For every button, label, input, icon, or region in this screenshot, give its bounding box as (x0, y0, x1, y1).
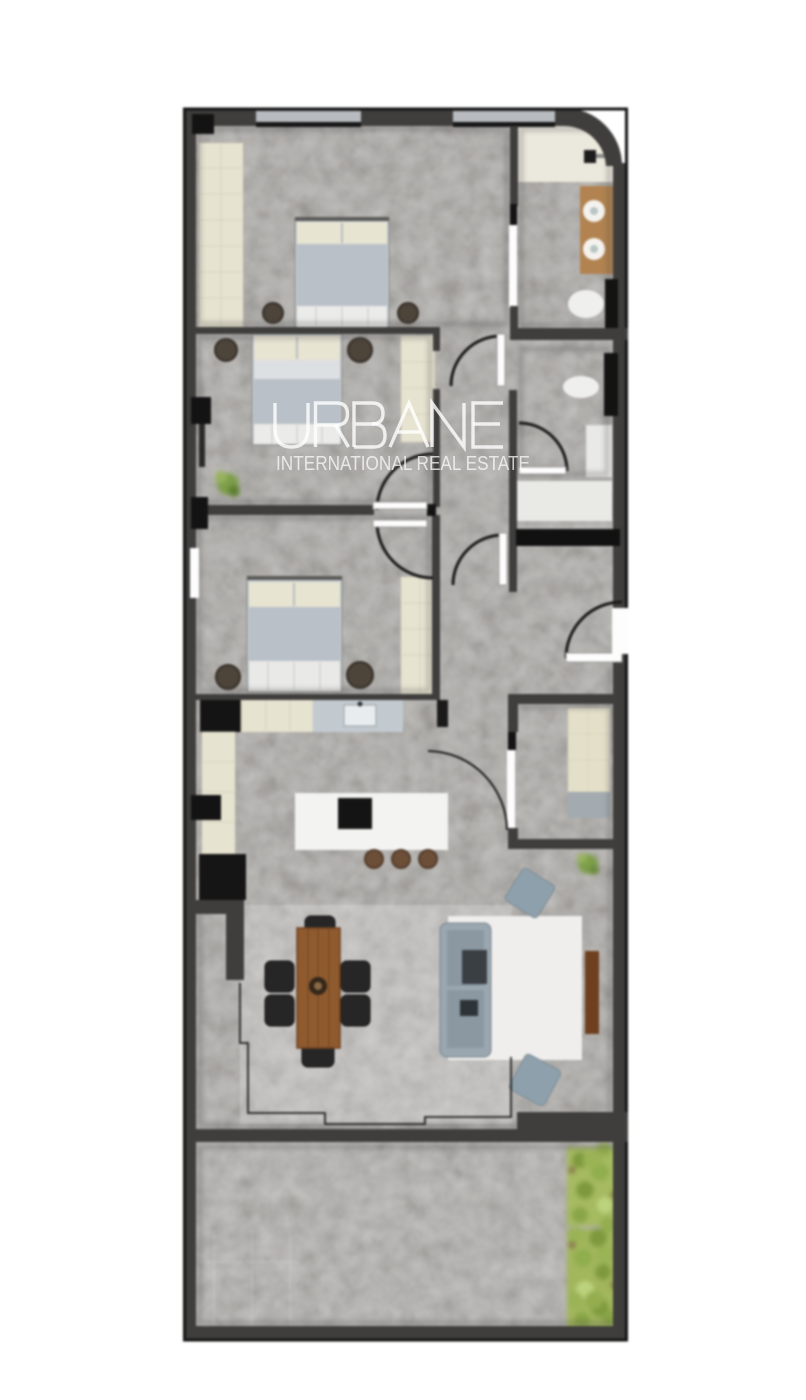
svg-text:INTERNATIONAL REAL ESTATE: INTERNATIONAL REAL ESTATE (276, 452, 530, 475)
